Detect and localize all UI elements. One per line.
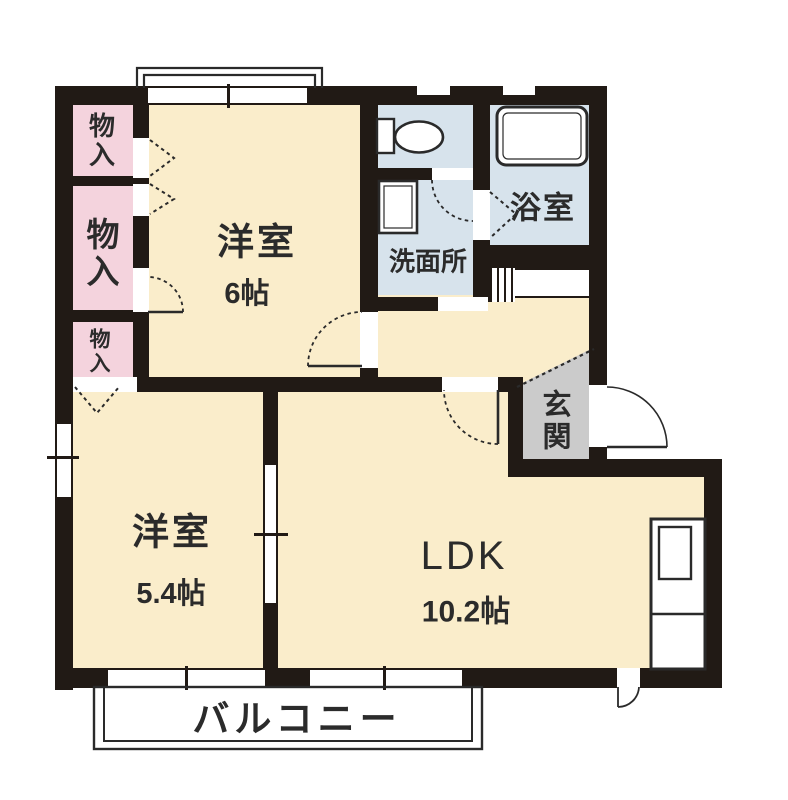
entrance-door-swing xyxy=(607,387,667,447)
entrance-step-line xyxy=(517,349,594,387)
floor-plan: 洋室 6帖 洋室 5.4帖 LDK 10.2帖 洗面所 浴室 玄関 物入 物入 … xyxy=(0,0,788,800)
bathtub-fixture xyxy=(497,107,587,165)
washroom-label: 洗面所 xyxy=(389,248,467,275)
bedroom2-label: 洋室 xyxy=(132,514,212,553)
closet3-bifold-symbol xyxy=(75,387,119,413)
washbasin-fixture xyxy=(379,181,417,233)
bedroom1-door-swing xyxy=(308,312,362,366)
closet2-label: 物入 xyxy=(85,217,121,291)
service-door-swing xyxy=(618,687,639,707)
toilet-fixture xyxy=(377,119,443,153)
ldk-area: 10.2帖 xyxy=(422,596,510,628)
bedroom2-area: 5.4帖 xyxy=(136,579,205,609)
balcony-label: バルコニー xyxy=(192,701,401,740)
bay-window-frame xyxy=(137,68,322,88)
bedroom1-area: 6帖 xyxy=(224,279,269,309)
ldk-label: LDK xyxy=(421,535,508,577)
bathroom-label: 浴室 xyxy=(510,193,576,226)
bedroom1-label: 洋室 xyxy=(217,224,297,263)
closet1-bifold-symbol xyxy=(150,140,174,176)
closet3-label: 物入 xyxy=(89,328,112,375)
toilet-door-swing xyxy=(432,180,473,221)
closet2-bifold-symbol xyxy=(150,184,174,214)
ldk-door-swing xyxy=(444,390,498,444)
entrance-label: 玄関 xyxy=(541,390,572,455)
closet2-door-swing xyxy=(148,277,183,312)
symbols-layer xyxy=(0,0,788,800)
closet1-label: 物入 xyxy=(88,112,116,170)
kitchen-counter-fixture xyxy=(651,519,705,669)
